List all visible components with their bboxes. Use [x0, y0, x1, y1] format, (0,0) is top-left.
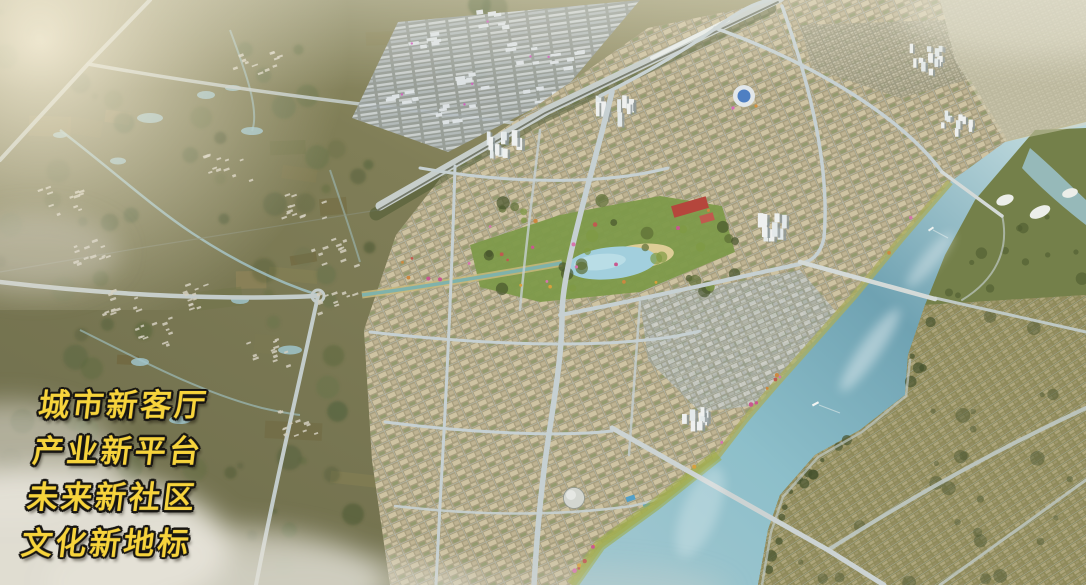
accent-dot: [731, 106, 734, 109]
aerial-masterplan-render: 城市新客厅 产业新平台 未来新社区 文化新地标: [0, 0, 1086, 585]
dome-highlight: [566, 490, 576, 500]
slogan-overlay: 城市新客厅 产业新平台 未来新社区 文化新地标: [19, 383, 212, 567]
stadium-field: [738, 90, 751, 103]
slogan-line-1: 城市新客厅: [36, 383, 212, 429]
accent-dot: [754, 104, 757, 107]
slogan-line-3: 未来新社区: [24, 475, 200, 521]
slogan-line-2: 产业新平台: [30, 429, 206, 475]
slogan-line-4: 文化新地标: [19, 521, 195, 567]
